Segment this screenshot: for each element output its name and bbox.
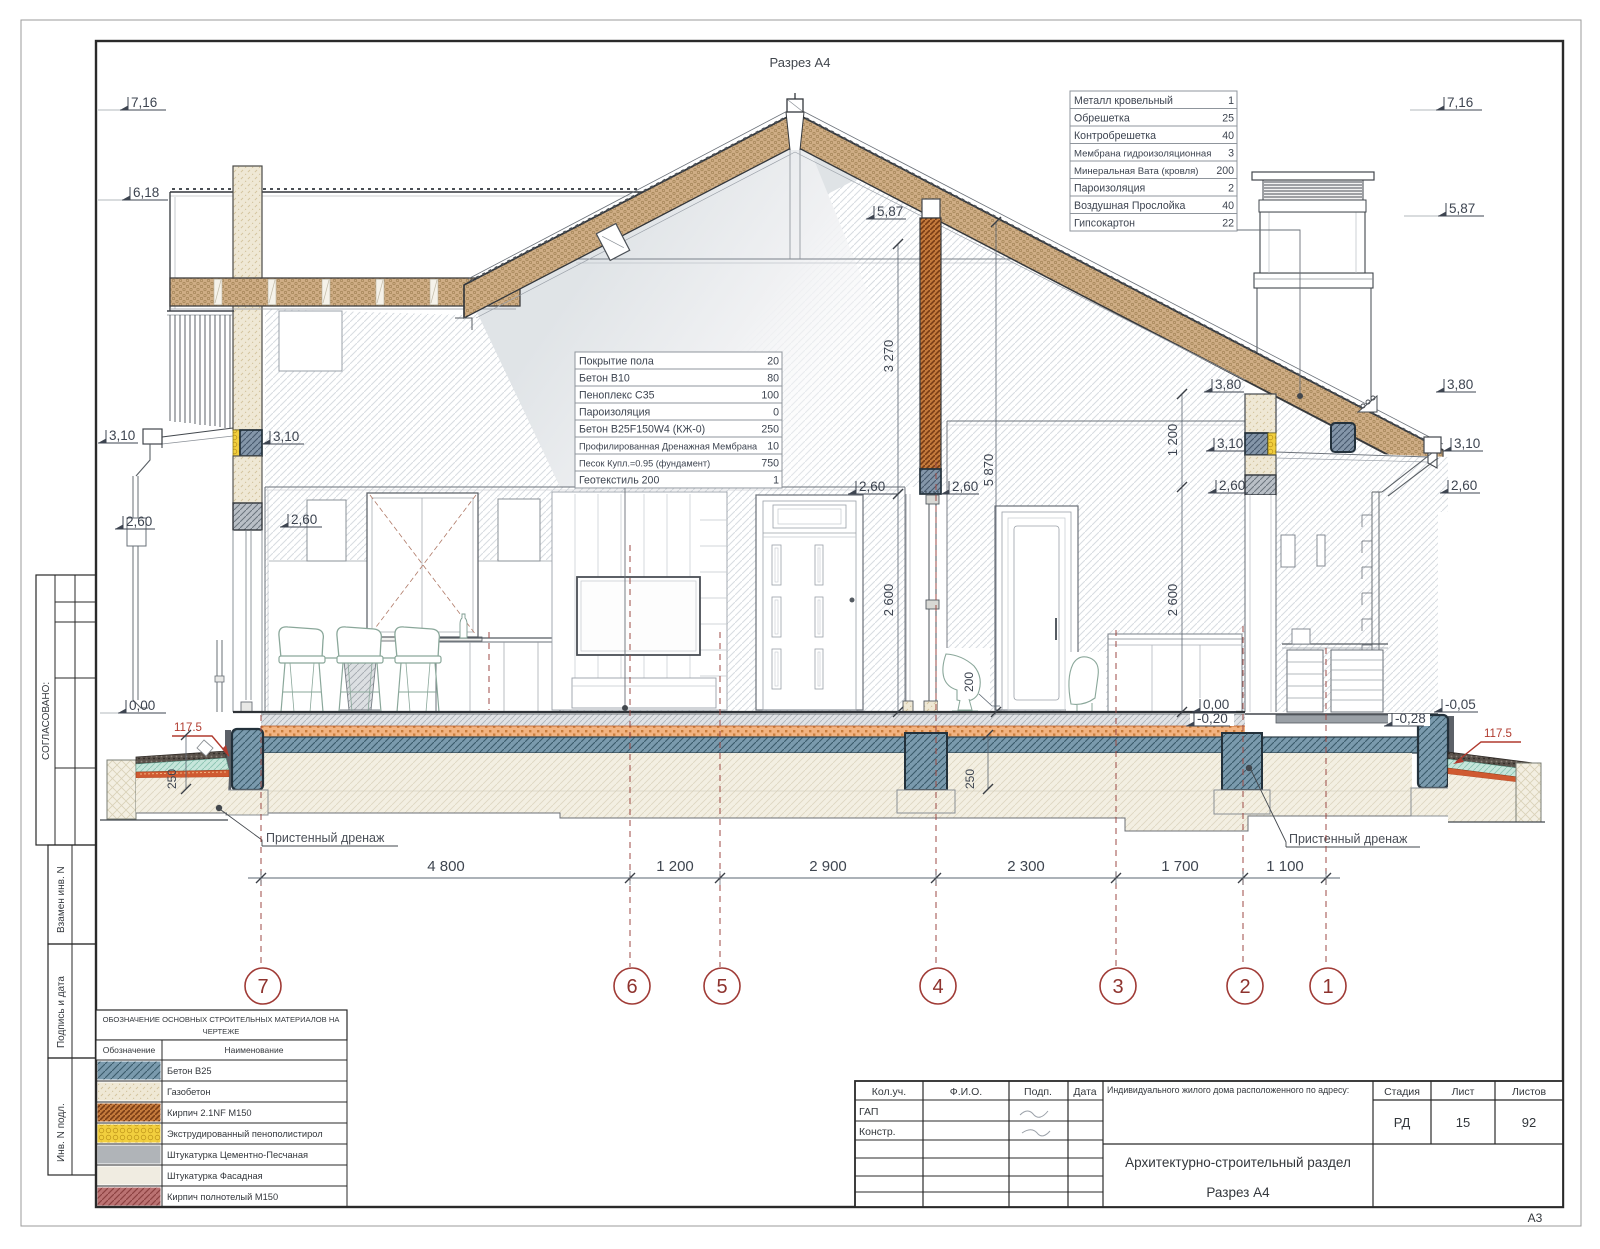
svg-text:Пароизоляция: Пароизоляция (579, 407, 650, 419)
svg-text:Кол.уч.: Кол.уч. (872, 1086, 906, 1098)
svg-text:2,60: 2,60 (1451, 478, 1477, 493)
svg-text:Обозначение: Обозначение (103, 1045, 156, 1055)
svg-text:3: 3 (1112, 976, 1123, 998)
svg-text:2 300: 2 300 (1007, 858, 1045, 875)
svg-text:Инв. N подл.: Инв. N подл. (56, 1103, 67, 1162)
svg-text:Пристенный дренаж: Пристенный дренаж (266, 831, 385, 845)
svg-text:3 270: 3 270 (881, 340, 896, 373)
svg-text:Индивидуального жилого дома ра: Индивидуального жилого дома расположенно… (1107, 1085, 1349, 1095)
svg-text:25: 25 (1222, 113, 1234, 125)
svg-text:6,18: 6,18 (133, 185, 159, 200)
svg-text:5,87: 5,87 (877, 204, 903, 219)
svg-text:Дата: Дата (1073, 1086, 1096, 1098)
svg-text:А3: А3 (1528, 1211, 1543, 1225)
svg-text:4: 4 (932, 976, 943, 998)
svg-text:1 700: 1 700 (1161, 858, 1199, 875)
svg-text:Покрытие пола: Покрытие пола (579, 356, 654, 368)
svg-text:6: 6 (626, 976, 637, 998)
svg-text:80: 80 (767, 373, 779, 385)
svg-text:2,60: 2,60 (859, 479, 885, 494)
svg-text:РД: РД (1394, 1115, 1411, 1130)
svg-text:Мембрана гидроизоляционная: Мембрана гидроизоляционная (1074, 149, 1211, 160)
svg-text:Профилированная Дренажная Мемб: Профилированная Дренажная Мембрана (579, 442, 758, 452)
svg-text:5: 5 (716, 976, 727, 998)
svg-text:92: 92 (1522, 1115, 1536, 1130)
svg-text:Взамен инв. N: Взамен инв. N (56, 866, 67, 933)
svg-text:Обрешетка: Обрешетка (1074, 113, 1130, 125)
svg-text:Песок Купл.=0.95 (фундамент): Песок Купл.=0.95 (фундамент) (579, 459, 710, 469)
svg-text:Бетон B25F150W4 (КЖ-0): Бетон B25F150W4 (КЖ-0) (579, 424, 705, 436)
svg-text:Пароизоляция: Пароизоляция (1074, 183, 1145, 195)
svg-text:Гипсокартон: Гипсокартон (1074, 218, 1135, 230)
svg-text:СОГЛАСОВАНО:: СОГЛАСОВАНО: (41, 682, 52, 760)
svg-text:Разрез А4: Разрез А4 (1206, 1185, 1270, 1200)
svg-text:250: 250 (963, 769, 977, 789)
svg-text:3,10: 3,10 (273, 429, 299, 444)
svg-text:1 100: 1 100 (1266, 858, 1304, 875)
svg-text:ЧЕРТЕЖЕ: ЧЕРТЕЖЕ (203, 1027, 240, 1036)
svg-text:5,87: 5,87 (1449, 201, 1475, 216)
svg-text:2 900: 2 900 (809, 858, 847, 875)
svg-text:Штукатурка Фасадная: Штукатурка Фасадная (167, 1171, 263, 1181)
svg-text:Кирпич 2.1NF М150: Кирпич 2.1NF М150 (167, 1108, 252, 1118)
svg-text:7,16: 7,16 (131, 95, 157, 110)
svg-text:-0,05: -0,05 (1445, 697, 1476, 712)
svg-text:4 800: 4 800 (427, 858, 465, 875)
svg-text:0: 0 (773, 407, 779, 419)
svg-text:Пеноплекс С35: Пеноплекс С35 (579, 390, 655, 402)
svg-text:3,10: 3,10 (109, 428, 135, 443)
svg-text:1 200: 1 200 (656, 858, 694, 875)
svg-text:Разрез А4: Разрез А4 (770, 55, 831, 70)
svg-text:3,80: 3,80 (1447, 377, 1473, 392)
svg-text:2 600: 2 600 (1165, 584, 1180, 617)
svg-text:3: 3 (1228, 148, 1234, 160)
svg-text:-0,20: -0,20 (1197, 711, 1228, 726)
svg-text:3,10: 3,10 (1454, 436, 1480, 451)
svg-text:2: 2 (1239, 976, 1250, 998)
svg-text:2,60: 2,60 (126, 514, 152, 529)
svg-text:3,10: 3,10 (1217, 436, 1243, 451)
svg-text:Кирпич полнотелый М150: Кирпич полнотелый М150 (167, 1192, 278, 1202)
svg-text:7: 7 (257, 976, 268, 998)
svg-text:2,60: 2,60 (291, 512, 317, 527)
svg-text:Констр.: Констр. (859, 1126, 896, 1138)
svg-text:Лист: Лист (1452, 1086, 1475, 1098)
svg-text:100: 100 (761, 390, 779, 402)
svg-text:2,60: 2,60 (952, 479, 978, 494)
svg-text:1: 1 (1228, 95, 1234, 107)
svg-text:Подп.: Подп. (1024, 1086, 1052, 1098)
svg-text:20: 20 (767, 356, 779, 368)
svg-text:Архитектурно-строительный раз: Архитектурно-строительный раздел (1125, 1155, 1351, 1170)
svg-text:2 600: 2 600 (881, 584, 896, 617)
svg-text:Листов: Листов (1512, 1086, 1547, 1098)
svg-text:1: 1 (773, 475, 779, 487)
svg-text:ГАП: ГАП (859, 1106, 878, 1118)
svg-text:1 200: 1 200 (1165, 424, 1180, 457)
svg-text:Ф.И.О.: Ф.И.О. (950, 1086, 982, 1098)
svg-text:Стадия: Стадия (1384, 1086, 1420, 1098)
svg-text:0,00: 0,00 (129, 698, 155, 713)
svg-text:3,80: 3,80 (1215, 377, 1241, 392)
svg-text:Экструдированный пенополистиро: Экструдированный пенополистирол (167, 1129, 323, 1139)
svg-text:Бетон В10: Бетон В10 (579, 373, 630, 385)
svg-text:40: 40 (1222, 200, 1234, 212)
svg-text:0,00: 0,00 (1203, 697, 1229, 712)
svg-text:7,16: 7,16 (1447, 95, 1473, 110)
svg-text:Воздушная Прослойка: Воздушная Прослойка (1074, 200, 1186, 212)
svg-text:750: 750 (761, 458, 779, 470)
svg-text:5 870: 5 870 (981, 454, 996, 487)
svg-text:250: 250 (165, 769, 179, 789)
svg-text:15: 15 (1456, 1115, 1470, 1130)
svg-text:40: 40 (1222, 130, 1234, 142)
svg-text:200: 200 (962, 672, 976, 692)
svg-text:Штукатурка Цементно-Песчаная: Штукатурка Цементно-Песчаная (167, 1150, 308, 1160)
svg-text:Подпись и дата: Подпись и дата (56, 976, 67, 1048)
svg-text:Наименование: Наименование (225, 1045, 284, 1055)
svg-text:22: 22 (1222, 218, 1234, 230)
svg-text:Геотекстиль 200: Геотекстиль 200 (579, 475, 659, 487)
svg-text:Бетон В25: Бетон В25 (167, 1066, 212, 1076)
svg-text:Пристенный дренаж: Пристенный дренаж (1289, 832, 1408, 846)
svg-text:ОБОЗНАЧЕНИЕ ОСНОВНЫХ СТРОИТЕЛЬ: ОБОЗНАЧЕНИЕ ОСНОВНЫХ СТРОИТЕЛЬНЫХ МАТЕРИ… (103, 1015, 341, 1024)
svg-text:1: 1 (1322, 976, 1333, 998)
svg-text:Газобетон: Газобетон (167, 1087, 210, 1097)
svg-text:117.5: 117.5 (1484, 728, 1512, 740)
svg-text:200: 200 (1216, 165, 1234, 177)
svg-text:-0,28: -0,28 (1395, 711, 1426, 726)
svg-text:Минеральная Вата (кровля): Минеральная Вата (кровля) (1074, 166, 1198, 177)
svg-text:Металл кровельный: Металл кровельный (1074, 95, 1173, 107)
svg-text:2: 2 (1228, 183, 1234, 195)
svg-text:2,60: 2,60 (1219, 478, 1245, 493)
svg-text:10: 10 (767, 441, 779, 453)
svg-text:250: 250 (761, 424, 779, 436)
svg-text:Контробрешетка: Контробрешетка (1074, 130, 1156, 142)
